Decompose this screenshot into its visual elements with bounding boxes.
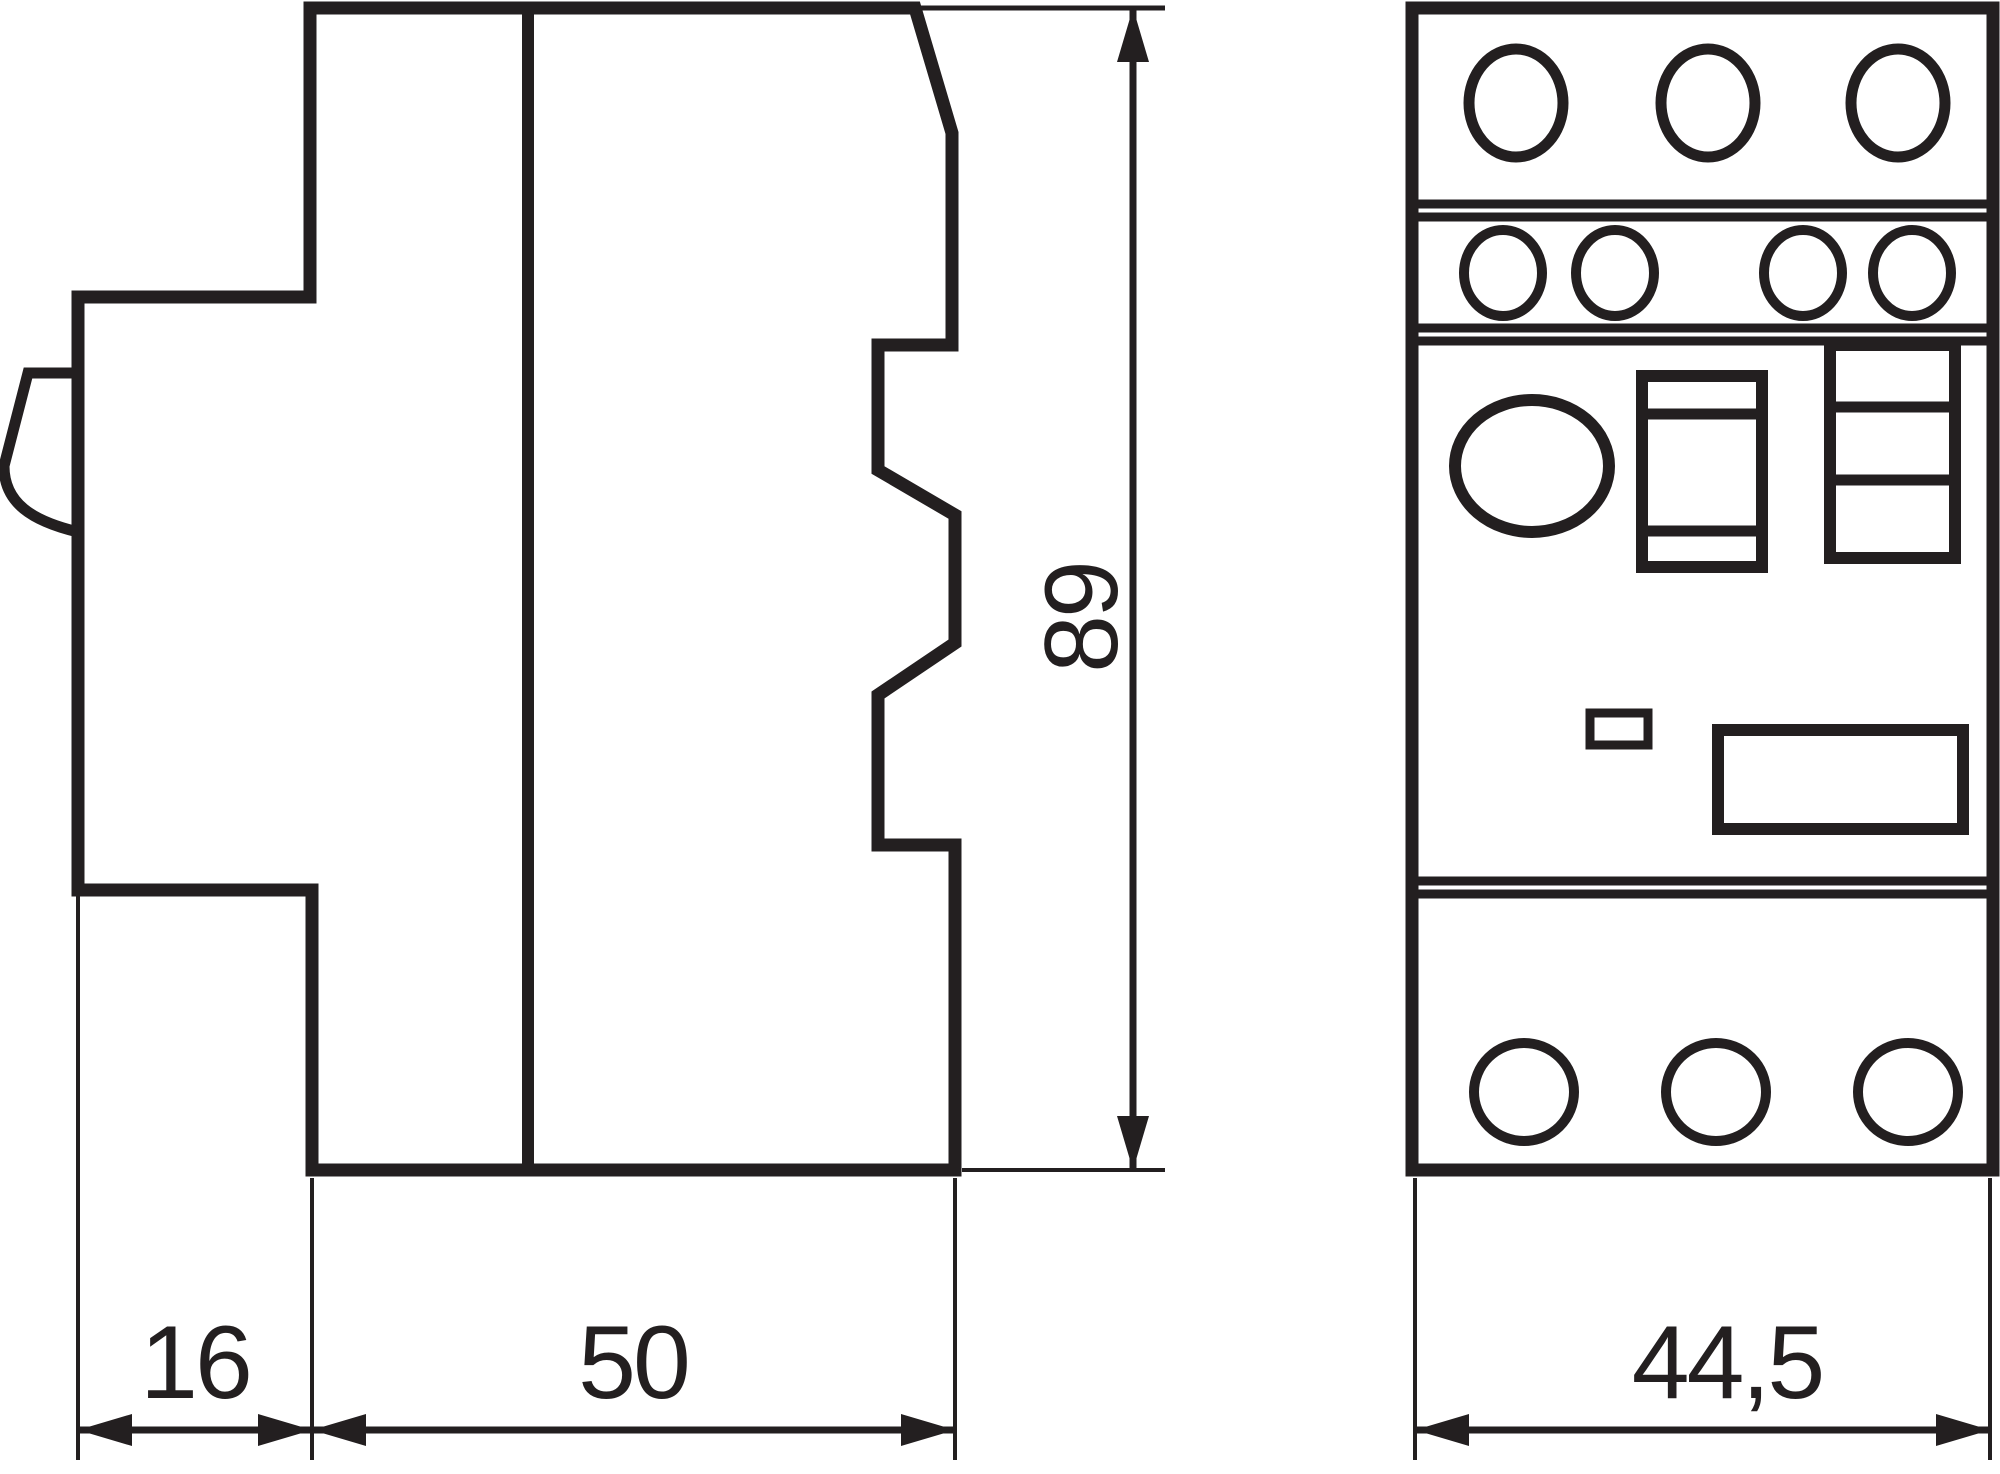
arrowhead-left: [312, 1414, 366, 1446]
label-plate: [1718, 730, 1963, 829]
dim-label-depth-main: 50: [578, 1305, 688, 1421]
side-view: [4, 8, 955, 1170]
arrowhead-down: [1117, 1116, 1149, 1170]
rocker-switch: [1642, 376, 1762, 567]
setting-dial-block: [1830, 345, 1955, 558]
terminal-screw-top-2: [1661, 49, 1755, 157]
terminal-screw-bottom-2: [1666, 1043, 1766, 1141]
terminal-screw-bottom-1: [1474, 1043, 1574, 1141]
terminal-screw-top-1: [1469, 49, 1563, 157]
front-view-body: [1412, 8, 1993, 1170]
label-window-small: [1590, 713, 1648, 745]
drawing-canvas: 89 16 50 44,5: [0, 0, 2000, 1474]
rocker-switch-frame: [1642, 376, 1762, 567]
din-clip-tab: [4, 373, 78, 532]
setting-dial-frame: [1830, 345, 1955, 558]
arrowhead-right: [258, 1414, 312, 1446]
dim-label-front-width: 44,5: [1632, 1305, 1822, 1421]
front-view: [1412, 8, 1993, 1170]
dim-width-44-5: 44,5: [1415, 1305, 1990, 1446]
dim-label-depth-left: 16: [140, 1305, 250, 1421]
terminal-screw-top-3: [1851, 49, 1945, 157]
dim-depth-16: 16: [78, 1305, 312, 1446]
arrowhead-left: [1415, 1414, 1469, 1446]
dim-label-height: 89: [1024, 563, 1140, 673]
aux-terminal-screw-2: [1576, 230, 1654, 316]
dim-depth-50: 50: [312, 1305, 955, 1446]
arrowhead-right: [1936, 1414, 1990, 1446]
dimension-annotations: 89 16 50 44,5: [78, 8, 1990, 1460]
arrowhead-up: [1117, 8, 1149, 62]
dimension-drawing-svg: 89 16 50 44,5: [0, 0, 2000, 1474]
arrowhead-left: [78, 1414, 132, 1446]
aux-terminal-screw-3: [1764, 230, 1842, 316]
aux-terminal-screw-1: [1464, 230, 1542, 316]
aux-terminal-screw-4: [1873, 230, 1951, 316]
dim-height-89: 89: [1024, 8, 1149, 1170]
side-view-outline: [78, 8, 955, 1170]
arrowhead-right: [901, 1414, 955, 1446]
round-button: [1455, 400, 1609, 532]
terminal-screw-bottom-3: [1858, 1043, 1958, 1141]
